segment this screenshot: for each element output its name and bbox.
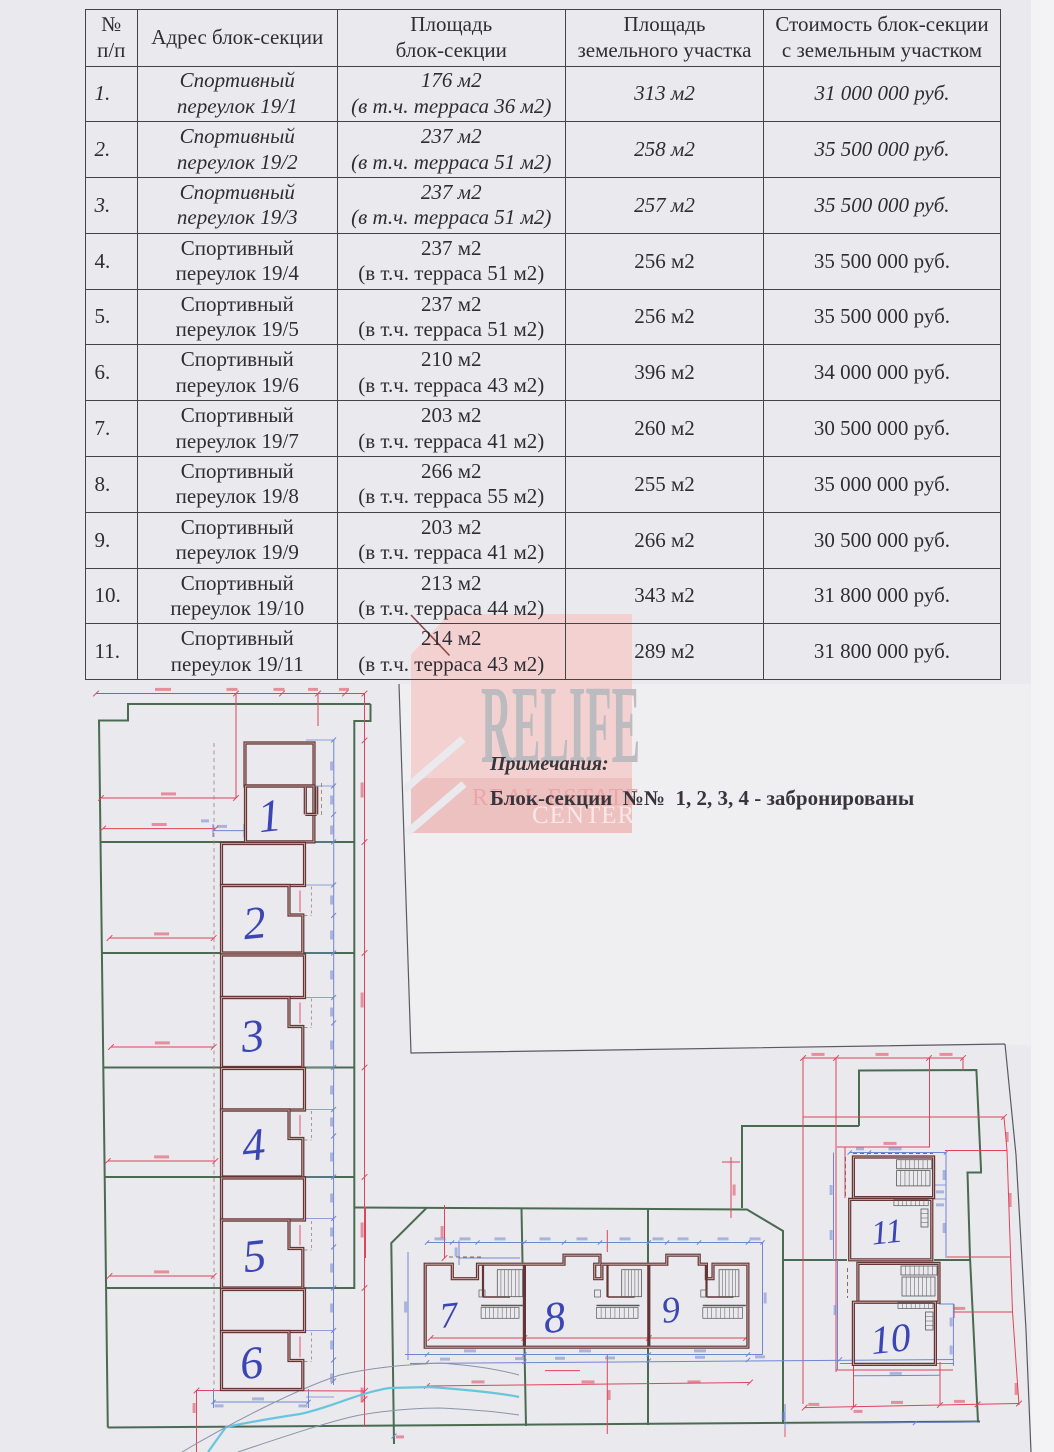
svg-text:10: 10 [868, 1314, 912, 1363]
svg-text:9: 9 [659, 1289, 682, 1332]
svg-text:4: 4 [239, 1118, 267, 1171]
svg-text:6: 6 [237, 1336, 265, 1389]
svg-text:5: 5 [240, 1229, 268, 1282]
svg-text:8: 8 [541, 1292, 568, 1343]
svg-text:7: 7 [438, 1294, 462, 1336]
svg-text:1: 1 [255, 789, 283, 842]
svg-text:11: 11 [869, 1213, 904, 1253]
svg-text:3: 3 [237, 1009, 266, 1062]
svg-text:2: 2 [240, 896, 268, 949]
